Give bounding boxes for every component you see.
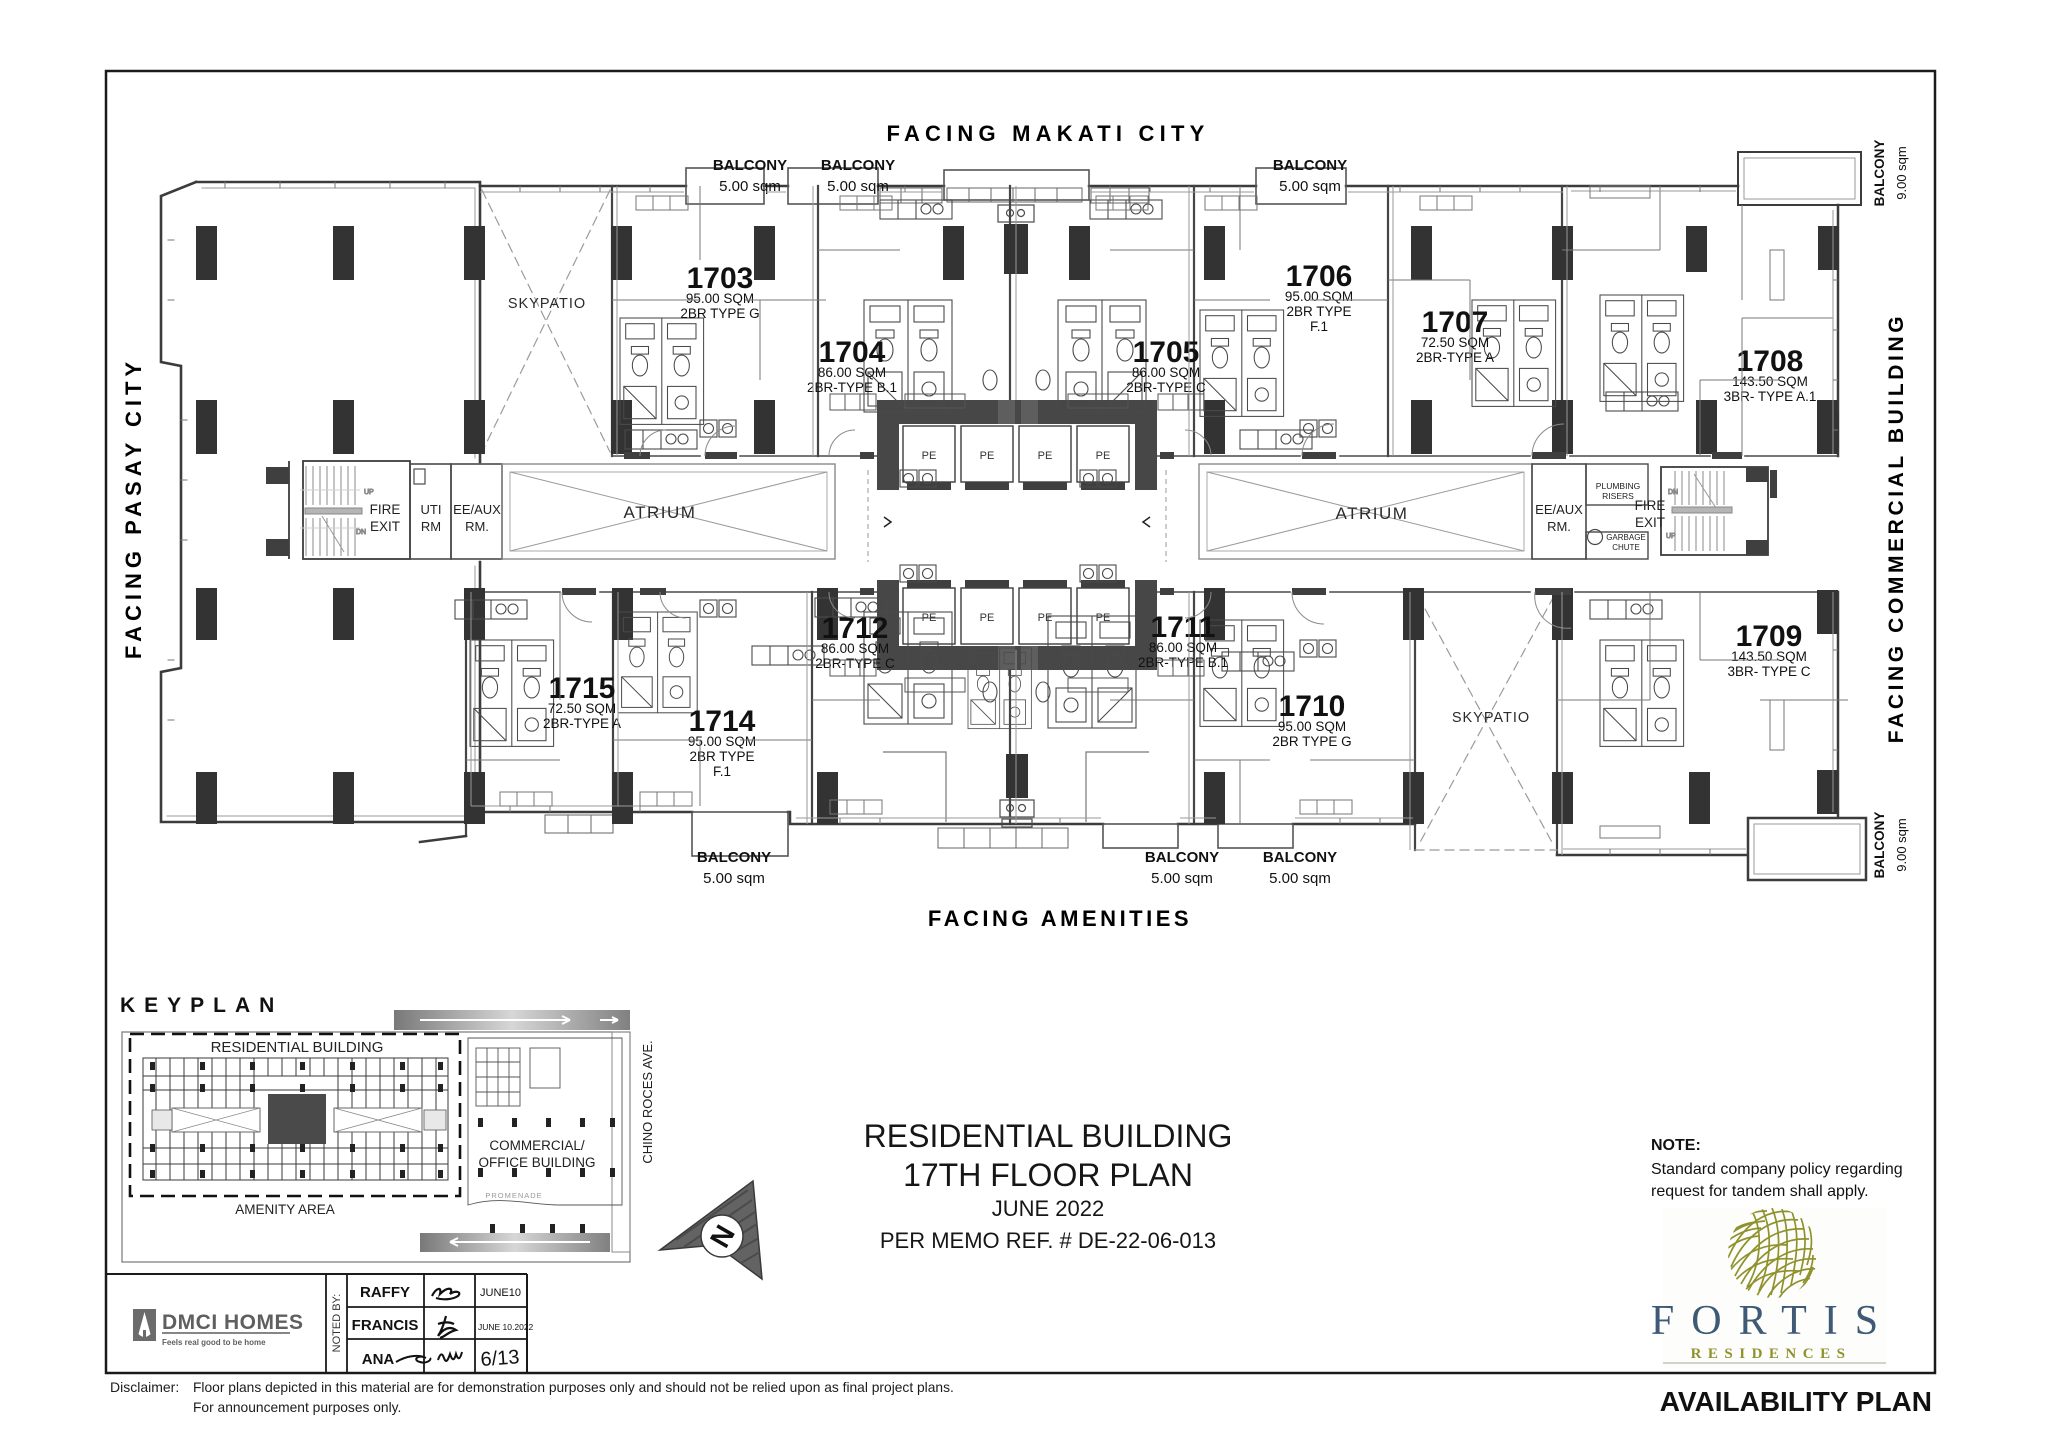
svg-text:2BR-TYPE A: 2BR-TYPE A — [543, 716, 621, 731]
svg-text:ANA: ANA — [362, 1351, 395, 1368]
svg-text:86.00 SQM: 86.00 SQM — [821, 641, 889, 656]
svg-text:FACING COMMERCIAL BUILDING: FACING COMMERCIAL BUILDING — [1885, 313, 1908, 743]
svg-text:5.00 sqm: 5.00 sqm — [827, 178, 889, 195]
svg-text:2BR-TYPE A: 2BR-TYPE A — [1416, 350, 1494, 365]
svg-text:17TH FLOOR PLAN: 17TH FLOOR PLAN — [903, 1157, 1193, 1193]
svg-text:BALCONY: BALCONY — [1263, 849, 1337, 866]
svg-text:BALCONY: BALCONY — [821, 157, 895, 174]
svg-text:5.00 sqm: 5.00 sqm — [1269, 870, 1331, 887]
svg-text:2BR-TYPE C: 2BR-TYPE C — [1126, 380, 1206, 395]
svg-text:RISERS: RISERS — [1602, 491, 1634, 501]
svg-text:FACING PASAY CITY: FACING PASAY CITY — [121, 357, 146, 659]
svg-text:Standard company policy regard: Standard company policy regarding — [1651, 1161, 1903, 1178]
svg-text:AMENITY AREA: AMENITY AREA — [235, 1202, 335, 1217]
svg-text:9.00 sqm: 9.00 sqm — [1894, 818, 1909, 871]
svg-text:86.00 SQM: 86.00 SQM — [1132, 365, 1200, 380]
svg-text:5.00 sqm: 5.00 sqm — [1151, 870, 1213, 887]
svg-text:UTI: UTI — [421, 502, 442, 517]
svg-text:BALCONY: BALCONY — [713, 157, 787, 174]
svg-text:72.50 SQM: 72.50 SQM — [548, 701, 616, 716]
svg-text:PER MEMO REF. # DE-22-06-013: PER MEMO REF. # DE-22-06-013 — [880, 1228, 1216, 1253]
svg-text:2BR TYPE G: 2BR TYPE G — [680, 306, 759, 321]
svg-text:FRANCIS: FRANCIS — [352, 1317, 419, 1334]
svg-text:UP: UP — [1666, 533, 1676, 540]
svg-text:143.50 SQM: 143.50 SQM — [1731, 649, 1807, 664]
svg-text:SKYPATIO: SKYPATIO — [1452, 710, 1530, 726]
svg-text:RESIDENTIAL BUILDING: RESIDENTIAL BUILDING — [864, 1118, 1233, 1154]
svg-text:2BR-TYPE C: 2BR-TYPE C — [815, 656, 895, 671]
svg-text:FACING AMENITIES: FACING AMENITIES — [928, 906, 1192, 931]
svg-text:EXIT: EXIT — [370, 519, 400, 534]
svg-text:6/13: 6/13 — [480, 1346, 520, 1371]
svg-text:PE: PE — [980, 450, 995, 462]
svg-text:72.50 SQM: 72.50 SQM — [1421, 335, 1489, 350]
svg-text:Feels real good to be home: Feels real good to be home — [162, 1338, 266, 1347]
svg-text:143.50 SQM: 143.50 SQM — [1732, 374, 1808, 389]
svg-text:FIRE: FIRE — [1635, 498, 1666, 513]
svg-text:BALCONY: BALCONY — [1872, 812, 1887, 879]
svg-text:Floor plans depicted in this m: Floor plans depicted in this material ar… — [193, 1380, 954, 1395]
svg-text:5.00 sqm: 5.00 sqm — [703, 870, 765, 887]
svg-text:FIRE: FIRE — [370, 502, 401, 517]
svg-text:JUNE10: JUNE10 — [480, 1287, 521, 1299]
svg-text:GARBAGE: GARBAGE — [1606, 533, 1646, 542]
svg-text:2BR TYPE G: 2BR TYPE G — [1272, 734, 1351, 749]
svg-text:86.00 SQM: 86.00 SQM — [1149, 640, 1217, 655]
svg-text:DN: DN — [1668, 489, 1678, 496]
svg-text:FACING MAKATI CITY: FACING MAKATI CITY — [887, 121, 1210, 146]
svg-text:RAFFY: RAFFY — [360, 1284, 410, 1301]
svg-text:For announcement purposes only: For announcement purposes only. — [193, 1400, 401, 1415]
svg-text:2BR TYPE: 2BR TYPE — [689, 749, 754, 764]
svg-text:RM.: RM. — [1547, 519, 1571, 534]
svg-text:DN: DN — [356, 529, 366, 536]
svg-text:JUNE 10.2022: JUNE 10.2022 — [478, 1322, 534, 1332]
svg-text:EXIT: EXIT — [1635, 515, 1665, 530]
svg-text:95.00 SQM: 95.00 SQM — [688, 734, 756, 749]
svg-text:86.00 SQM: 86.00 SQM — [818, 365, 886, 380]
svg-text:KEYPLAN: KEYPLAN — [120, 994, 283, 1017]
svg-text:PE: PE — [922, 450, 937, 462]
svg-text:PE: PE — [1038, 612, 1053, 624]
svg-text:2BR-TYPE B.1: 2BR-TYPE B.1 — [807, 380, 897, 395]
svg-text:request for tandem shall apply: request for tandem shall apply. — [1651, 1183, 1869, 1200]
svg-text:FORTIS: FORTIS — [1651, 1298, 1895, 1344]
svg-text:NOTED BY:: NOTED BY: — [331, 1294, 343, 1353]
svg-text:F.1: F.1 — [1310, 319, 1328, 334]
svg-text:RM.: RM. — [465, 519, 489, 534]
svg-text:PE: PE — [1038, 450, 1053, 462]
svg-text:CHUTE: CHUTE — [1612, 543, 1640, 552]
svg-text:2BR-TYPE B.1: 2BR-TYPE B.1 — [1138, 655, 1228, 670]
svg-text:95.00 SQM: 95.00 SQM — [686, 291, 754, 306]
svg-text:RESIDENTIAL BUILDING: RESIDENTIAL BUILDING — [211, 1039, 384, 1056]
svg-text:BALCONY: BALCONY — [1145, 849, 1219, 866]
svg-text:95.00 SQM: 95.00 SQM — [1278, 719, 1346, 734]
svg-text:BALCONY: BALCONY — [1872, 140, 1887, 207]
svg-text:BALCONY: BALCONY — [1273, 157, 1347, 174]
svg-text:UP: UP — [364, 489, 374, 496]
svg-text:Disclaimer:: Disclaimer: — [110, 1379, 179, 1395]
svg-text:95.00 SQM: 95.00 SQM — [1285, 289, 1353, 304]
svg-text:PE: PE — [1096, 450, 1111, 462]
svg-text:SKYPATIO: SKYPATIO — [508, 296, 586, 312]
svg-text:3BR- TYPE A.1: 3BR- TYPE A.1 — [1724, 389, 1817, 404]
svg-text:3BR- TYPE C: 3BR- TYPE C — [1727, 664, 1810, 679]
svg-text:PROMENADE: PROMENADE — [485, 1191, 542, 1200]
svg-text:ATRIUM: ATRIUM — [1336, 504, 1409, 523]
svg-text:JUNE 2022: JUNE 2022 — [992, 1196, 1105, 1221]
svg-text:RESIDENCES: RESIDENCES — [1691, 1346, 1852, 1362]
svg-text:NOTE:: NOTE: — [1651, 1137, 1701, 1154]
svg-text:CHINO ROCES AVE.: CHINO ROCES AVE. — [640, 1040, 655, 1163]
svg-text:F.1: F.1 — [713, 764, 731, 779]
svg-text:BALCONY: BALCONY — [697, 849, 771, 866]
svg-text:PLUMBING: PLUMBING — [1596, 481, 1640, 491]
svg-text:2BR TYPE: 2BR TYPE — [1286, 304, 1351, 319]
svg-text:ATRIUM: ATRIUM — [624, 503, 697, 522]
svg-text:5.00 sqm: 5.00 sqm — [1279, 178, 1341, 195]
svg-text:DMCI HOMES: DMCI HOMES — [162, 1311, 304, 1334]
svg-text:COMMERCIAL/: COMMERCIAL/ — [489, 1138, 585, 1153]
svg-text:EE/AUX: EE/AUX — [453, 502, 501, 517]
svg-text:EE/AUX: EE/AUX — [1535, 502, 1583, 517]
svg-text:RM: RM — [421, 519, 441, 534]
svg-text:PE: PE — [980, 612, 995, 624]
svg-text:OFFICE BUILDING: OFFICE BUILDING — [478, 1155, 595, 1170]
svg-text:9.00 sqm: 9.00 sqm — [1894, 146, 1909, 199]
svg-text:AVAILABILITY PLAN: AVAILABILITY PLAN — [1660, 1386, 1932, 1417]
